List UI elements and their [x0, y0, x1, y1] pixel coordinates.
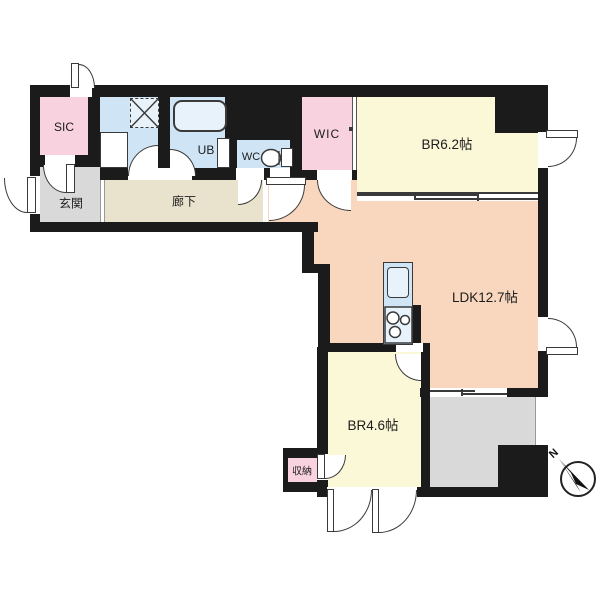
- room-label-wc: WC: [242, 151, 260, 163]
- room-label-ub: UB: [198, 143, 215, 157]
- room-label-br2: BR4.6帖: [347, 414, 398, 434]
- toilet-icon: [262, 150, 281, 167]
- room-label-entrance: 玄関: [59, 195, 83, 212]
- floorplan-canvas: N SIC 玄関 廊下 UB WC WIC BR6.2帖 LDK12.7帖 BR…: [0, 0, 600, 600]
- room-label-storage: 収納: [292, 463, 312, 478]
- compass-icon: N: [547, 447, 595, 496]
- stove-icon: [385, 307, 412, 343]
- room-label-br1: BR6.2帖: [421, 133, 472, 153]
- north-label: N: [547, 447, 561, 461]
- room-label-ldk: LDK12.7帖: [452, 286, 518, 306]
- room-label-wic: WIC: [314, 127, 340, 141]
- room-label-corridor: 廊下: [172, 193, 196, 210]
- washer-x-icon: [131, 99, 158, 127]
- room-label-sic: SIC: [54, 120, 74, 134]
